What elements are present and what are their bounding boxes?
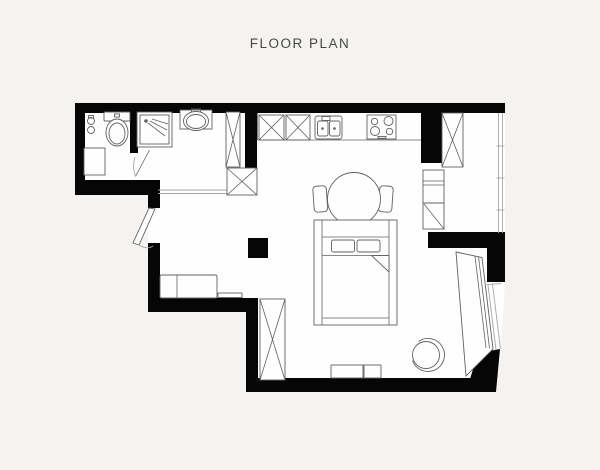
wall-entry-upper [148,180,160,208]
tall-cabinet [226,112,240,167]
vanity-sink [180,109,212,131]
bench-sofa [160,275,217,298]
round-dining-table [328,173,381,226]
wall-right-mid [428,232,505,248]
wardrobe [260,299,285,380]
toilet [104,112,130,146]
dining-chair-left [313,186,328,213]
floor-plan-page: FLOOR PLAN [0,0,600,470]
double-bed [314,220,397,325]
wall-wc-bottom [75,180,160,195]
wall-entry-lower [148,243,160,303]
wall-shower-right [245,113,257,168]
structural-column [248,238,268,258]
low-shelf [218,293,242,298]
wall-kitchen-stub [421,113,442,163]
floor-plan-drawing [0,0,600,470]
wall-top [75,103,505,113]
storage-cabinet [227,168,257,195]
wall-living-left [246,298,258,392]
wall-hall-bottom [148,298,258,312]
wall-right-step [487,248,505,282]
shower-cabin [137,112,172,147]
washer-cabinet [84,148,105,175]
drawer-bench [331,365,381,378]
double-sink [315,116,342,139]
